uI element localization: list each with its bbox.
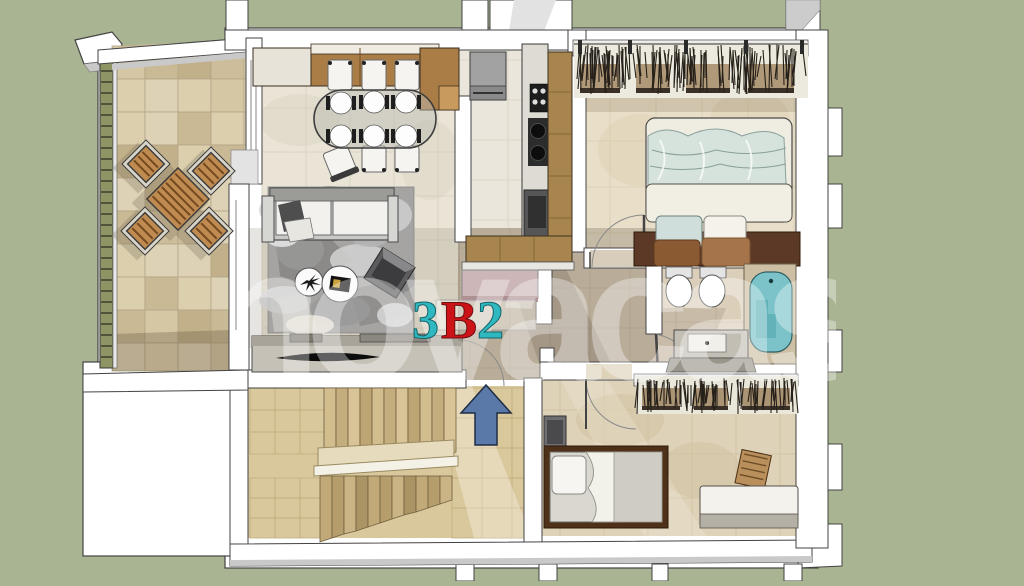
- svg-text:B: B: [441, 290, 477, 350]
- svg-text:3: 3: [412, 290, 439, 350]
- svg-text:2: 2: [477, 290, 504, 350]
